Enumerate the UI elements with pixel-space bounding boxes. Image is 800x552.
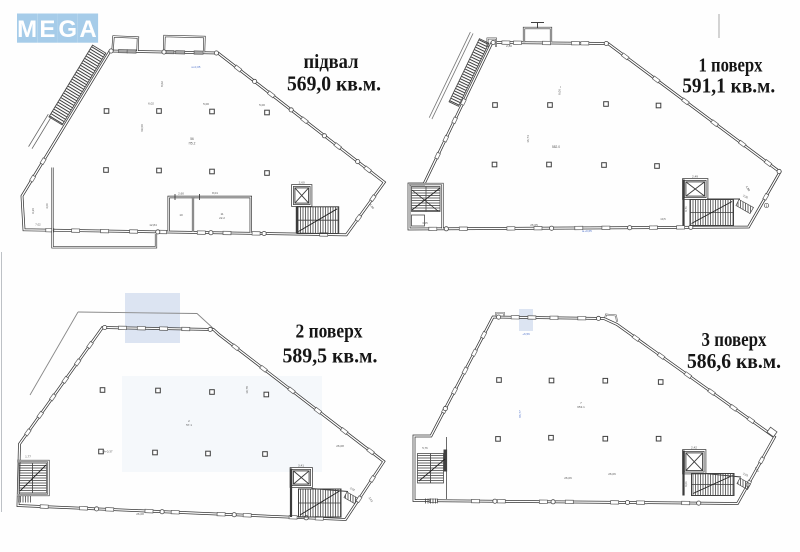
svg-text:3,41: 3,41 <box>298 464 304 468</box>
svg-text:8,01: 8,01 <box>212 191 218 195</box>
svg-text:2,80: 2,80 <box>506 44 512 48</box>
svg-text:8,02: 8,02 <box>160 81 164 87</box>
svg-text:5,00: 5,00 <box>203 102 209 106</box>
svg-text:10,78: 10,78 <box>245 386 249 394</box>
svg-text:G: G <box>58 16 77 43</box>
svg-text:589,5 кв.м.: 589,5 кв.м. <box>283 344 378 368</box>
svg-text:3,02: 3,02 <box>349 486 356 492</box>
svg-text:591,1 кв.м.: 591,1 кв.м. <box>682 74 775 98</box>
svg-text:8,06: 8,06 <box>558 89 562 95</box>
svg-text:26,08: 26,08 <box>336 444 344 448</box>
svg-text:3,02: 3,02 <box>368 496 375 503</box>
svg-text:4,66: 4,66 <box>368 203 375 210</box>
svg-text:9,26: 9,26 <box>31 208 35 214</box>
svg-text:26,06: 26,06 <box>564 476 572 480</box>
svg-text:M: M <box>17 16 37 43</box>
svg-text:9,71: 9,71 <box>684 206 688 212</box>
svg-text:2,60: 2,60 <box>299 181 305 185</box>
svg-text:+6,56: +6,56 <box>522 332 530 336</box>
svg-text:69,60: 69,60 <box>140 124 144 132</box>
svg-text:5,00: 5,00 <box>259 103 265 107</box>
svg-text:A: A <box>79 16 96 43</box>
svg-text:3,30: 3,30 <box>742 194 749 200</box>
svg-text:6,02: 6,02 <box>148 102 154 106</box>
svg-text:22.2: 22.2 <box>219 216 225 220</box>
svg-text:586,6 кв.м.: 586,6 кв.м. <box>687 349 781 373</box>
svg-text:М+0,37: М+0,37 <box>102 450 112 454</box>
svg-text:56: 56 <box>190 137 194 141</box>
svg-text:2,60: 2,60 <box>178 192 184 196</box>
svg-text:м+0,65: м+0,65 <box>582 229 592 233</box>
svg-text:9,01: 9,01 <box>684 481 688 487</box>
svg-text:7,02: 7,02 <box>35 223 41 227</box>
svg-text:26,08: 26,08 <box>136 512 144 516</box>
svg-text:57.1: 57.1 <box>186 423 192 427</box>
svg-text:2,49: 2,49 <box>692 175 698 179</box>
svg-text:26,06: 26,06 <box>608 472 616 476</box>
svg-text:3,05: 3,05 <box>422 221 428 225</box>
svg-text:569,0 кв.м.: 569,0 кв.м. <box>287 72 381 96</box>
svg-text:1: 1 <box>766 204 768 208</box>
svg-text:E: E <box>39 16 55 43</box>
svg-text:3,03: 3,03 <box>742 472 749 478</box>
svg-text:2,42: 2,42 <box>691 446 697 450</box>
svg-text:582.0: 582.0 <box>552 145 560 149</box>
svg-text:10,5: 10,5 <box>660 217 666 221</box>
svg-text:16,74: 16,74 <box>526 135 530 143</box>
svg-text:2 поверх: 2 поверх <box>296 322 363 343</box>
svg-text:86,77: 86,77 <box>518 410 522 418</box>
svg-text:м-0,05: м-0,05 <box>192 65 201 69</box>
svg-text:26,65: 26,65 <box>530 223 538 227</box>
svg-text:I: I <box>560 85 561 89</box>
svg-text:4,88: 4,88 <box>745 185 752 192</box>
svg-text:3 поверх: 3 поверх <box>702 330 767 351</box>
svg-text:653.1: 653.1 <box>577 405 585 409</box>
svg-text:підвал: підвал <box>304 51 359 73</box>
svg-text:10: 10 <box>179 213 183 217</box>
svg-text:5,76: 5,76 <box>422 446 428 450</box>
svg-text:12,84: 12,84 <box>149 223 157 227</box>
svg-text:1,77: 1,77 <box>25 455 31 459</box>
svg-text:4,00: 4,00 <box>45 203 49 209</box>
svg-text:П5.2: П5.2 <box>189 142 196 146</box>
